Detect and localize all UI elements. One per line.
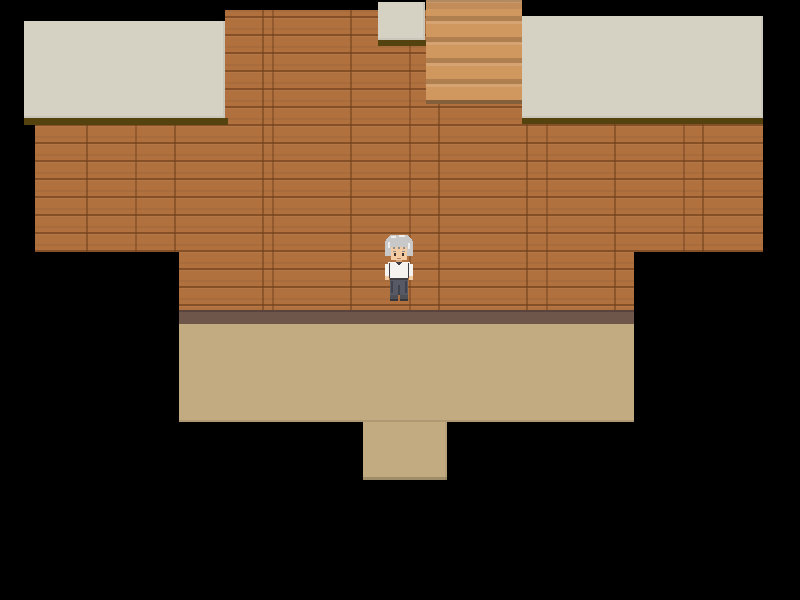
ceiling-small-shadow <box>378 40 426 46</box>
elderly-man-icon <box>383 233 415 303</box>
ceiling-left <box>24 21 225 118</box>
wall-under-stairs <box>426 104 522 252</box>
character-sprite[interactable] <box>383 233 415 303</box>
staircase[interactable] <box>426 0 522 104</box>
ceiling-right-shadow <box>522 118 763 124</box>
ceiling-small <box>378 2 425 40</box>
game-viewport <box>0 0 800 600</box>
wall-left <box>35 125 225 252</box>
floor[interactable] <box>179 324 634 422</box>
wall-under-right-ceiling <box>522 124 763 252</box>
baseboard <box>179 310 634 324</box>
ceiling-left-shadow <box>24 118 228 125</box>
wall-upper-mid <box>225 10 426 252</box>
ceiling-right <box>522 16 763 118</box>
doorway-south[interactable] <box>363 422 447 480</box>
